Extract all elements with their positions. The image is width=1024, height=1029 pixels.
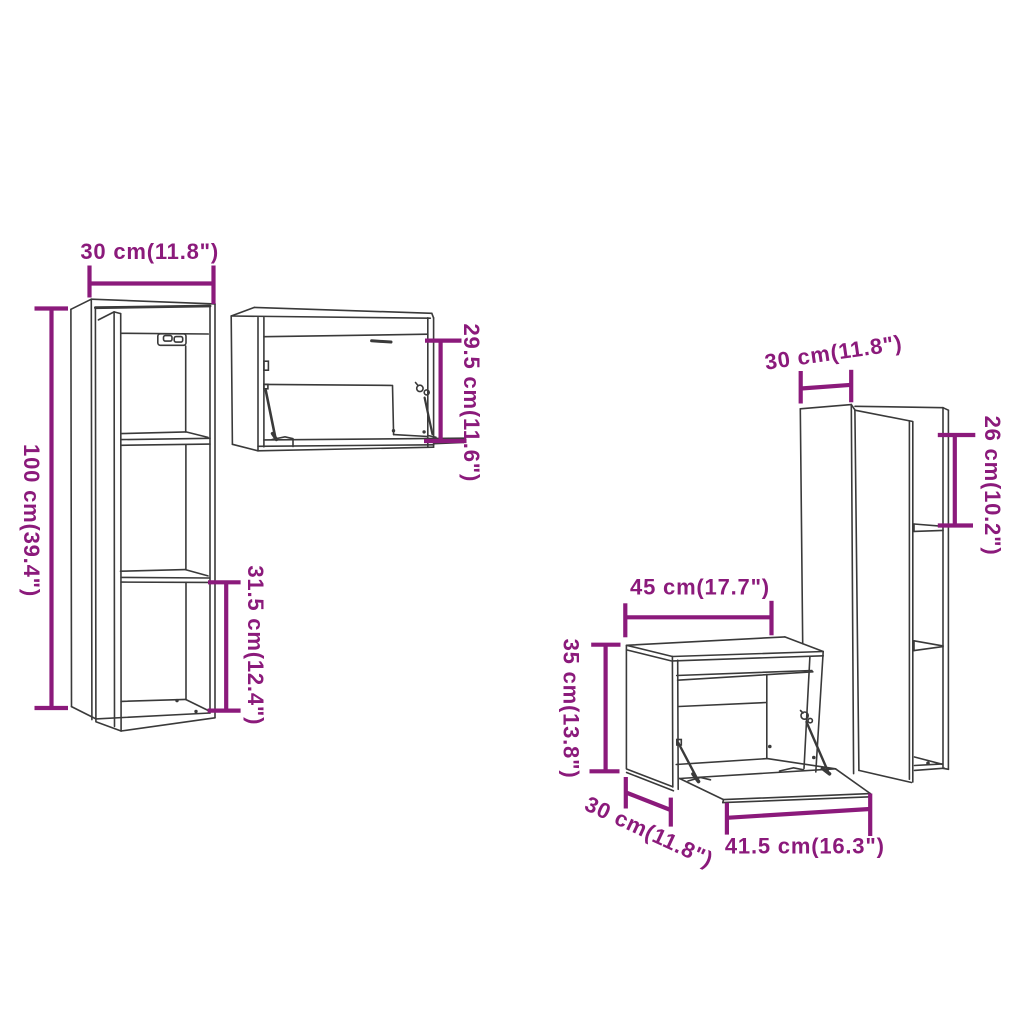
svg-text:26 cm(10.2"): 26 cm(10.2"): [980, 416, 1005, 556]
svg-text:30 cm(11.8"): 30 cm(11.8"): [80, 239, 219, 264]
svg-text:45 cm(17.7"): 45 cm(17.7"): [630, 574, 770, 599]
svg-text:100 cm(39.4"): 100 cm(39.4"): [19, 444, 44, 597]
svg-text:31.5 cm(12.4"): 31.5 cm(12.4"): [243, 565, 268, 725]
svg-text:29.5 cm(11.6"): 29.5 cm(11.6"): [459, 323, 484, 482]
svg-text:41.5 cm(16.3"): 41.5 cm(16.3"): [725, 833, 885, 858]
svg-text:35 cm(13.8"): 35 cm(13.8"): [559, 639, 584, 779]
